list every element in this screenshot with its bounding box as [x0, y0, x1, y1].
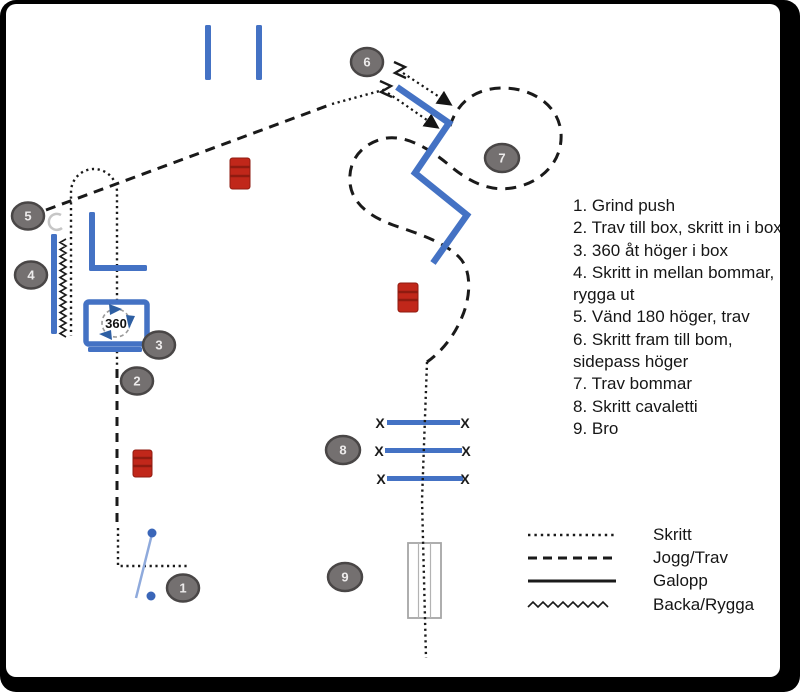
dotted-line-icon: [526, 529, 618, 541]
instruction-line: 2. Trav till box, skritt in i box: [573, 217, 780, 239]
instruction-list: 1. Grind push 2. Trav till box, skritt i…: [573, 195, 780, 440]
legend-label: Backa/Rygga: [653, 595, 754, 615]
cavaletti-end-mark: X: [461, 443, 471, 459]
svg-text:5: 5: [24, 209, 31, 224]
rygga-mark-icon: [380, 81, 392, 97]
turn-arrow-icon: [99, 330, 112, 340]
marker-1: 1: [167, 575, 199, 602]
path-trav-serpentine: [350, 88, 561, 362]
barrel-icon: [230, 158, 250, 189]
instruction-line: 9. Bro: [573, 418, 780, 440]
pole-top-left: [205, 25, 211, 80]
svg-text:3: 3: [155, 338, 162, 353]
path-backa-zigzag: [60, 239, 66, 337]
diagram-frame: 360 X X: [0, 0, 800, 692]
instruction-line: sidepass höger: [573, 351, 780, 373]
turn-arrow-icon: [126, 315, 135, 329]
legend-row-skritt: Skritt: [526, 523, 776, 546]
marker-6: 6: [351, 48, 383, 76]
box-360-bottom-bar: [88, 347, 142, 352]
legend-label: Galopp: [653, 571, 708, 591]
legend-row-jogg-trav: Jogg/Trav: [526, 546, 776, 569]
turn-arrow-icon: [109, 304, 122, 315]
svg-text:6: 6: [363, 55, 370, 70]
pole-L-vertical: [89, 212, 95, 268]
svg-text:9: 9: [341, 570, 348, 585]
instruction-line: 1. Grind push: [573, 195, 780, 217]
svg-text:7: 7: [498, 151, 505, 166]
box-360-label: 360: [105, 316, 127, 331]
course-canvas: 360 X X: [6, 4, 780, 677]
svg-text:8: 8: [339, 443, 346, 458]
gate: [136, 529, 157, 601]
marker-7: 7: [485, 144, 519, 172]
legend-label: Skritt: [653, 525, 692, 545]
turn-180-arc-icon: [49, 214, 62, 230]
marker-5: 5: [12, 203, 44, 230]
svg-text:1: 1: [179, 581, 186, 596]
barrel-icon: [398, 283, 418, 312]
legend-row-backa-rygga: Backa/Rygga: [526, 593, 776, 616]
legend-label: Jogg/Trav: [653, 548, 728, 568]
instruction-line: 4. Skritt in mellan bommar,: [573, 262, 780, 284]
cavaletti-end-mark: X: [460, 415, 470, 431]
marker-3: 3: [143, 332, 175, 359]
marker-9: 9: [328, 563, 362, 591]
zigzag-line-icon: [526, 599, 618, 611]
path-skritt-to-bom: [332, 89, 387, 104]
instruction-line: 7. Trav bommar: [573, 373, 780, 395]
pole-obstacle-4: [51, 234, 57, 334]
instruction-line: 6. Skritt fram till bom,: [573, 329, 780, 351]
pole-zigzag-bommar: [397, 87, 467, 263]
cavaletti-end-mark: X: [375, 415, 385, 431]
barrel-icon: [133, 450, 152, 477]
svg-text:4: 4: [27, 268, 35, 283]
pole-L-horizontal: [89, 265, 147, 271]
instruction-line: 5. Vänd 180 höger, trav: [573, 306, 780, 328]
marker-8: 8: [326, 436, 360, 464]
solid-line-icon: [526, 575, 618, 587]
cavaletti-end-mark: X: [376, 471, 386, 487]
instruction-line: rygga ut: [573, 284, 780, 306]
instruction-line: 8. Skritt cavaletti: [573, 396, 780, 418]
instruction-line: 3. 360 åt höger i box: [573, 240, 780, 262]
rygga-mark-icon: [394, 62, 406, 78]
legend-row-galopp: Galopp: [526, 570, 776, 593]
pole-top-right: [256, 25, 262, 80]
cavaletti-end-mark: X: [460, 471, 470, 487]
marker-4: 4: [15, 262, 47, 289]
cavaletti-end-mark: X: [374, 443, 384, 459]
path-trav-diagonal: [46, 104, 332, 210]
dashed-line-icon: [526, 552, 618, 564]
marker-2: 2: [121, 368, 153, 395]
legend: Skritt Jogg/Trav Galopp Backa/Rygga: [526, 523, 776, 616]
svg-text:2: 2: [133, 374, 140, 389]
